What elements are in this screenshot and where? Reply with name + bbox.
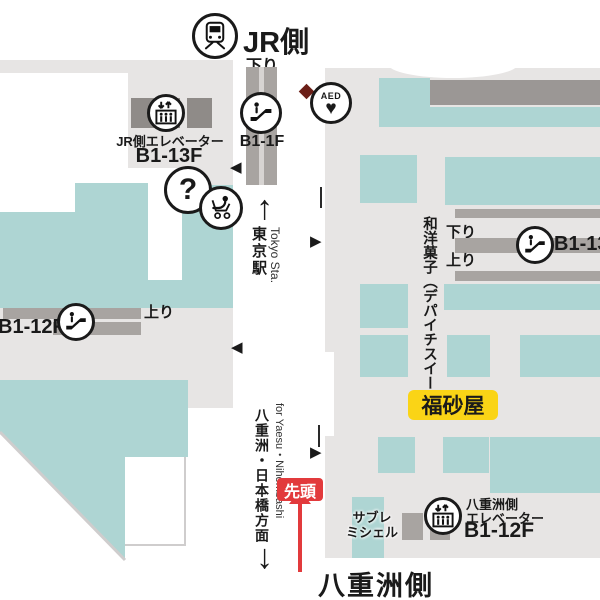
fukusaya-label: 福砂屋: [422, 390, 485, 420]
platform-bar: [430, 80, 600, 105]
shop-block: [360, 335, 408, 377]
center-escalator-floors: B1-1F: [237, 133, 287, 151]
heart-icon: ♥: [325, 101, 336, 116]
elevator-icon: [427, 500, 459, 532]
center-escalator-icon-circle: [240, 92, 282, 134]
yaesu-elevator-icon-circle: [424, 497, 462, 535]
jr-elevator-floors: B1-13F: [113, 145, 225, 168]
elevator-shaft-block: [187, 98, 212, 128]
sable-michel-label: サブレ ミシェル: [344, 511, 400, 541]
chevron-right-icon: ▶: [310, 234, 322, 249]
left-escalator-floors: B1-12F: [0, 316, 65, 339]
stroller-icon: [204, 191, 238, 225]
shop-block: [378, 437, 415, 473]
shop-block: [445, 157, 600, 205]
escalator-ramp: [455, 271, 600, 281]
chevron-left-icon: ◀: [230, 160, 242, 175]
escalator-icon: [61, 307, 91, 337]
tokyo-station-label-en: Tokyo Sta.: [268, 227, 282, 283]
left-floor-cut: [188, 408, 233, 422]
escalator-ramp: [455, 209, 600, 218]
shop-block: [75, 183, 148, 213]
confectionery-label: 和洋菓子（デパイチスイーツ）: [419, 216, 440, 419]
front-position-arrow-line: [298, 502, 302, 572]
train-icon: [196, 17, 234, 55]
shop-block: [379, 107, 600, 127]
jr-elevator-icon-circle: [147, 94, 185, 132]
shop-block: [443, 437, 489, 473]
chevron-right-icon: ▶: [310, 445, 322, 460]
up-escalator-label-right: 上り: [446, 249, 476, 270]
front-badge-label: 先頭: [284, 478, 316, 502]
question-icon: ?: [179, 173, 197, 207]
shop-block: [379, 78, 430, 107]
left-room: [0, 73, 128, 169]
floor-erasure: [320, 352, 334, 436]
yaesu-side-title: 八重洲側: [318, 564, 434, 600]
tokyo-station-label-jp: 東京駅: [248, 226, 269, 277]
escalator-icon: [245, 97, 277, 129]
room-notch: [125, 457, 186, 546]
front-badge: 先頭: [277, 478, 323, 501]
fukusaya-badge: 福砂屋: [408, 390, 498, 420]
floor-erasure: [388, 50, 518, 78]
stroller-icon-circle: [199, 186, 243, 230]
shop-block: [447, 335, 490, 377]
shop-block: [0, 212, 148, 308]
left-escalator-icon-circle: [57, 303, 95, 341]
shop-block: [360, 155, 417, 203]
wall-line: [320, 187, 322, 208]
shop-block: [360, 284, 408, 328]
sable-michel-line2: ミシェル: [344, 526, 400, 541]
shop-block: [490, 437, 600, 493]
right-escalator-floors: B1-13F: [554, 233, 600, 256]
escalator-icon: [520, 230, 550, 260]
down-arrow-icon: ↓: [256, 540, 273, 574]
jr-train-icon-circle: [192, 13, 238, 59]
elevator-icon: [150, 97, 182, 129]
chevron-left-icon: ◀: [231, 340, 243, 355]
station-floor-map: JR側エレベーター B1-13F ? 上り B1-12F: [0, 0, 600, 600]
elevator-shaft-block: [402, 513, 423, 540]
aed-icon-circle: AED ♥: [310, 82, 352, 124]
yaesu-elevator-floors: B1-12F: [464, 519, 534, 543]
yaesu-direction-label-jp: 八重洲・日本橋方面: [252, 408, 272, 543]
sable-michel-line1: サブレ: [344, 511, 400, 526]
shop-block: [520, 335, 600, 377]
up-arrow-icon: ↑: [256, 191, 273, 225]
right-escalator-icon-circle: [516, 226, 554, 264]
shop-block: [444, 284, 600, 310]
up-escalator-label: 上り: [144, 301, 174, 322]
